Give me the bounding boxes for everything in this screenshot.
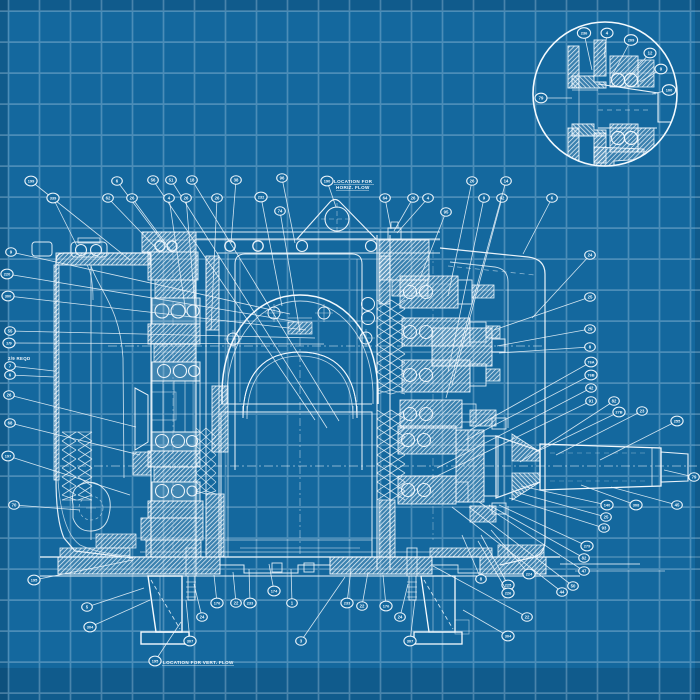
svg-text:56: 56 — [151, 178, 156, 183]
svg-text:304: 304 — [87, 624, 94, 629]
svg-text:26: 26 — [7, 393, 12, 398]
svg-text:23: 23 — [640, 409, 645, 414]
svg-text:93: 93 — [602, 526, 607, 531]
svg-text:195: 195 — [31, 577, 38, 582]
svg-text:74: 74 — [278, 209, 283, 214]
svg-text:76B: 76B — [587, 372, 594, 377]
svg-text:24: 24 — [588, 253, 593, 258]
svg-text:76A: 76A — [587, 359, 594, 364]
svg-text:26: 26 — [215, 196, 220, 201]
svg-text:26: 26 — [130, 196, 135, 201]
svg-text:339: 339 — [50, 195, 57, 200]
svg-text:224: 224 — [526, 571, 533, 576]
svg-text:45: 45 — [675, 503, 680, 508]
svg-text:47: 47 — [582, 569, 587, 574]
svg-text:96: 96 — [280, 176, 285, 181]
svg-text:255: 255 — [674, 418, 681, 423]
svg-text:304: 304 — [505, 633, 512, 638]
svg-text:197: 197 — [5, 453, 12, 458]
svg-text:236: 236 — [581, 30, 588, 35]
svg-text:176: 176 — [383, 603, 390, 608]
svg-text:95: 95 — [444, 210, 449, 215]
svg-text:233: 233 — [344, 600, 351, 605]
svg-text:232: 232 — [258, 194, 265, 199]
svg-text:51: 51 — [169, 178, 174, 183]
svg-text:220: 220 — [4, 271, 11, 276]
svg-text:307: 307 — [407, 638, 414, 643]
svg-text:22: 22 — [525, 615, 530, 620]
svg-text:25: 25 — [588, 295, 593, 300]
svg-text:279: 279 — [584, 543, 591, 548]
svg-text:24: 24 — [398, 615, 403, 620]
svg-text:LOCATION FOR: LOCATION FOR — [334, 179, 373, 184]
svg-text:300: 300 — [5, 293, 12, 298]
svg-text:42: 42 — [589, 386, 594, 391]
svg-text:55: 55 — [8, 329, 13, 334]
svg-text:2/9 REQD: 2/9 REQD — [8, 356, 30, 361]
svg-text:26: 26 — [184, 196, 189, 201]
svg-text:29: 29 — [588, 327, 593, 332]
svg-text:62: 62 — [106, 196, 111, 201]
svg-text:26: 26 — [411, 196, 416, 201]
svg-text:14: 14 — [504, 179, 509, 184]
svg-text:27B: 27B — [615, 409, 622, 414]
svg-text:50: 50 — [571, 584, 576, 589]
svg-text:209: 209 — [628, 37, 635, 42]
svg-text:307: 307 — [187, 638, 194, 643]
svg-text:91: 91 — [589, 399, 594, 404]
svg-text:18: 18 — [190, 178, 195, 183]
svg-text:22: 22 — [360, 604, 365, 609]
svg-text:140: 140 — [604, 502, 611, 507]
svg-text:24: 24 — [200, 615, 205, 620]
svg-text:226: 226 — [505, 590, 512, 595]
svg-text:22: 22 — [234, 601, 239, 606]
svg-text:2/9: 2/9 — [6, 340, 12, 345]
svg-text:176: 176 — [214, 600, 221, 605]
svg-text:195: 195 — [152, 658, 159, 663]
svg-text:38: 38 — [234, 178, 239, 183]
svg-text:79: 79 — [539, 96, 544, 101]
svg-text:12: 12 — [648, 51, 653, 56]
svg-text:44: 44 — [560, 590, 565, 595]
svg-text:LOCATION FOR VERT. FLOW: LOCATION FOR VERT. FLOW — [163, 660, 234, 665]
svg-text:82: 82 — [612, 399, 617, 404]
svg-text:79: 79 — [692, 475, 697, 480]
svg-text:174: 174 — [271, 588, 278, 593]
svg-text:225: 225 — [505, 582, 512, 587]
svg-text:199: 199 — [28, 178, 35, 183]
svg-text:25: 25 — [604, 515, 609, 520]
svg-text:190: 190 — [324, 178, 331, 183]
svg-text:100: 100 — [666, 87, 673, 92]
svg-text:68: 68 — [8, 421, 13, 426]
svg-text:233: 233 — [247, 600, 254, 605]
svg-text:82: 82 — [582, 556, 587, 561]
svg-text:26: 26 — [470, 179, 475, 184]
svg-text:HORIZ. FLOW: HORIZ. FLOW — [336, 185, 370, 190]
svg-text:70: 70 — [12, 503, 17, 508]
svg-text:64: 64 — [383, 196, 388, 201]
svg-text:308: 308 — [633, 502, 640, 507]
